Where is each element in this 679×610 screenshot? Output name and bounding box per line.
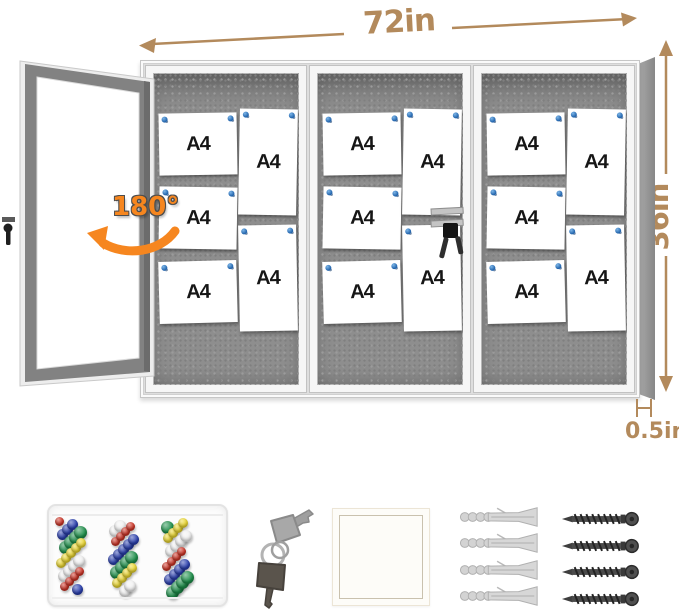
push-pin-icon	[162, 117, 168, 123]
door-swing-angle-label: 180°	[112, 192, 179, 222]
a4-paper: A4	[402, 109, 462, 216]
a4-paper: A4	[322, 112, 401, 175]
notice-board-cabinet: A4A4A4A4A4 A4A4A4A4A4 A4A4A4A4A4	[140, 60, 640, 398]
push-pin-icon	[392, 115, 398, 121]
push-pin-icon	[569, 228, 575, 234]
screw-icon	[560, 511, 646, 527]
push-pin-icon	[490, 117, 496, 123]
screw-icon	[560, 538, 646, 554]
push-pin-icon	[571, 112, 577, 118]
a4-paper: A4	[486, 260, 566, 324]
a4-label: A4	[350, 132, 374, 155]
width-dimension-label: 72in	[345, 1, 453, 42]
a4-paper: A4	[402, 225, 462, 332]
push-pin-icon	[227, 263, 233, 269]
a4-label: A4	[350, 206, 374, 229]
screws	[560, 511, 648, 607]
push-pin-icon	[451, 228, 457, 234]
a4-label: A4	[514, 280, 538, 304]
push-pin-icon	[287, 228, 293, 234]
a4-label: A4	[514, 206, 538, 229]
push-pin-icon	[228, 115, 234, 121]
push-pin	[178, 518, 188, 528]
a4-paper: A4	[322, 186, 401, 249]
depth-dimension-label: 0.5in	[625, 419, 679, 444]
push-pin-icon	[161, 265, 167, 271]
a4-paper: A4	[566, 109, 626, 216]
a4-label: A4	[186, 132, 210, 155]
push-pin-icon	[407, 112, 413, 118]
a4-paper: A4	[158, 260, 238, 324]
a4-label: A4	[514, 132, 538, 155]
panel-felt: A4A4A4A4A4	[317, 73, 463, 385]
push-pin-icon	[391, 263, 397, 269]
push-pin-icon	[556, 115, 562, 121]
board-panel-3: A4A4A4A4A4	[474, 66, 634, 392]
push-pin-icon	[490, 189, 496, 195]
a4-paper: A4	[238, 225, 298, 332]
push-pin	[75, 567, 84, 576]
blank-panel-sheet	[332, 508, 430, 606]
push-pin	[180, 530, 192, 542]
product-diagram-notice-board: A4A4A4A4A4 A4A4A4A4A4 A4A4A4A4A4	[0, 0, 679, 610]
push-pin	[76, 538, 86, 548]
push-pin-icon	[325, 265, 331, 271]
a4-label: A4	[256, 266, 280, 289]
depth-bracket	[637, 399, 651, 417]
anchor-icon	[458, 506, 544, 528]
push-pin-icon	[228, 191, 234, 197]
a4-label: A4	[584, 150, 608, 173]
board-panel-2: A4A4A4A4A4	[310, 66, 470, 392]
push-pin-icon	[556, 191, 562, 197]
a4-paper: A4	[322, 260, 402, 324]
door-lock-key-icon	[2, 217, 15, 245]
keys-icon	[243, 505, 319, 609]
a4-paper: A4	[566, 225, 626, 332]
screw-icon	[560, 591, 646, 607]
push-pin	[179, 559, 190, 570]
push-pin	[124, 580, 136, 592]
push-pin	[73, 555, 85, 567]
push-pin-icon	[405, 228, 411, 234]
a4-label: A4	[420, 266, 444, 289]
a4-label: A4	[420, 150, 444, 173]
anchor-icon	[458, 559, 544, 581]
push-pin-icon	[289, 112, 295, 118]
a4-paper: A4	[238, 109, 298, 216]
panel-felt: A4A4A4A4A4	[481, 73, 627, 385]
board-panel-1: A4A4A4A4A4	[146, 66, 306, 392]
push-pin-icon	[241, 228, 247, 234]
a4-paper: A4	[158, 112, 237, 175]
push-pin-icon	[615, 228, 621, 234]
a4-paper: A4	[486, 112, 565, 175]
anchor-icon	[458, 585, 544, 607]
push-pin-icon	[326, 117, 332, 123]
push-pin-icon	[555, 263, 561, 269]
push-pin	[128, 534, 139, 545]
a4-label: A4	[186, 280, 210, 304]
panel-felt: A4A4A4A4A4	[153, 73, 299, 385]
open-door	[2, 61, 154, 386]
screw-icon	[560, 564, 646, 580]
push-pin	[127, 563, 137, 573]
wall-anchors	[458, 506, 546, 607]
push-pin	[177, 547, 186, 556]
push-pins-box-contents	[49, 506, 226, 605]
anchor-icon	[458, 532, 544, 554]
push-pin	[181, 571, 194, 584]
cabinet-side-depth	[640, 57, 655, 400]
push-pin	[72, 584, 83, 595]
push-pin-icon	[617, 112, 623, 118]
a4-label: A4	[186, 206, 210, 229]
push-pin-icon	[392, 191, 398, 197]
a4-label: A4	[584, 266, 608, 289]
a4-label: A4	[350, 280, 374, 304]
a4-label: A4	[256, 150, 280, 173]
push-pin-icon	[489, 265, 495, 271]
push-pin-icon	[453, 112, 459, 118]
push-pin	[126, 522, 135, 531]
push-pin-icon	[326, 189, 332, 195]
push-pins-box	[47, 504, 228, 607]
push-pin-icon	[243, 112, 249, 118]
a4-paper: A4	[486, 186, 565, 249]
